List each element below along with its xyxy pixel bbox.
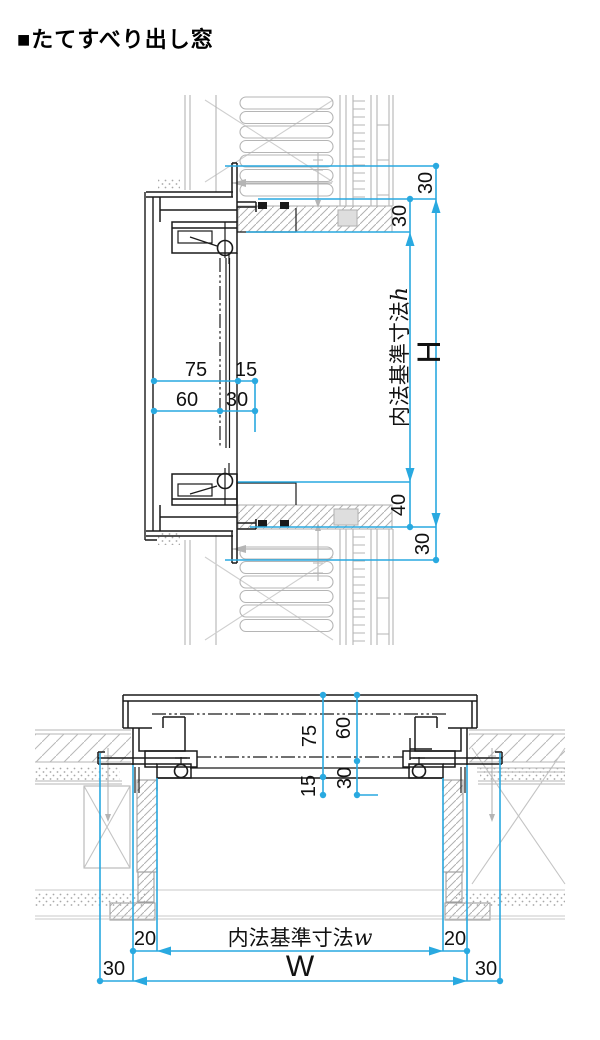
dim-offset-right: 30 [475, 958, 497, 980]
wall-structure-bottom [158, 505, 393, 645]
dim-sill-height: 40 [388, 494, 410, 516]
dim-depth-30: 30 [334, 767, 356, 789]
wall-structure-top [158, 95, 393, 232]
dim-depth-30: 30 [226, 389, 248, 411]
catalog-page: ■たてすべり出し窓 [0, 0, 600, 1040]
dim-depth-15: 15 [235, 359, 257, 381]
dim-offset-left: 30 [103, 958, 125, 980]
dim-gap-left: 20 [134, 928, 156, 950]
dim-offset-bottom: 30 [412, 533, 434, 555]
dim-depth-60: 60 [333, 717, 355, 739]
dim-depth-75: 75 [185, 359, 207, 381]
dim-overall-height-label: H [411, 340, 447, 363]
technical-drawing: 75 15 60 30 30 30 内法基準寸法h H 40 30 [0, 0, 600, 1040]
dim-frame-offset: 30 [389, 205, 411, 227]
dim-offset-top: 30 [415, 172, 437, 194]
dim-inner-height-label: 内法基準寸法h [388, 287, 413, 427]
dim-gap-right: 20 [444, 928, 466, 950]
vertical-section-drawing: 75 15 60 30 30 30 内法基準寸法h H 40 30 [145, 95, 447, 645]
dim-depth-15: 15 [298, 775, 320, 797]
dim-inner-width-label: 内法基準寸法w [228, 926, 373, 951]
page-title: ■たてすべり出し窓 [17, 22, 214, 54]
horizontal-section-drawing: 75 60 15 30 20 20 内法基準寸法w 30 30 W [35, 692, 565, 986]
dim-depth-75: 75 [299, 725, 321, 747]
dim-depth-60: 60 [176, 389, 198, 411]
dim-overall-width-label: W [286, 950, 315, 983]
